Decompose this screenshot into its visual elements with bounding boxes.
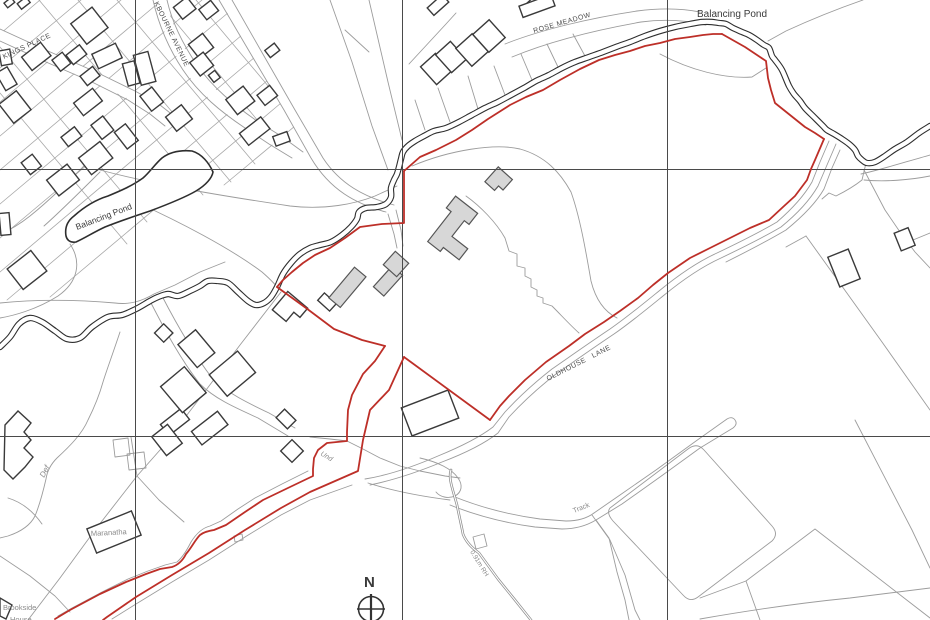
- svg-text:Maranatha: Maranatha: [91, 527, 128, 538]
- svg-text:N: N: [364, 574, 375, 591]
- svg-text:House: House: [10, 615, 32, 620]
- svg-text:Balancing Pond: Balancing Pond: [697, 9, 767, 20]
- svg-text:Brookside: Brookside: [3, 603, 36, 612]
